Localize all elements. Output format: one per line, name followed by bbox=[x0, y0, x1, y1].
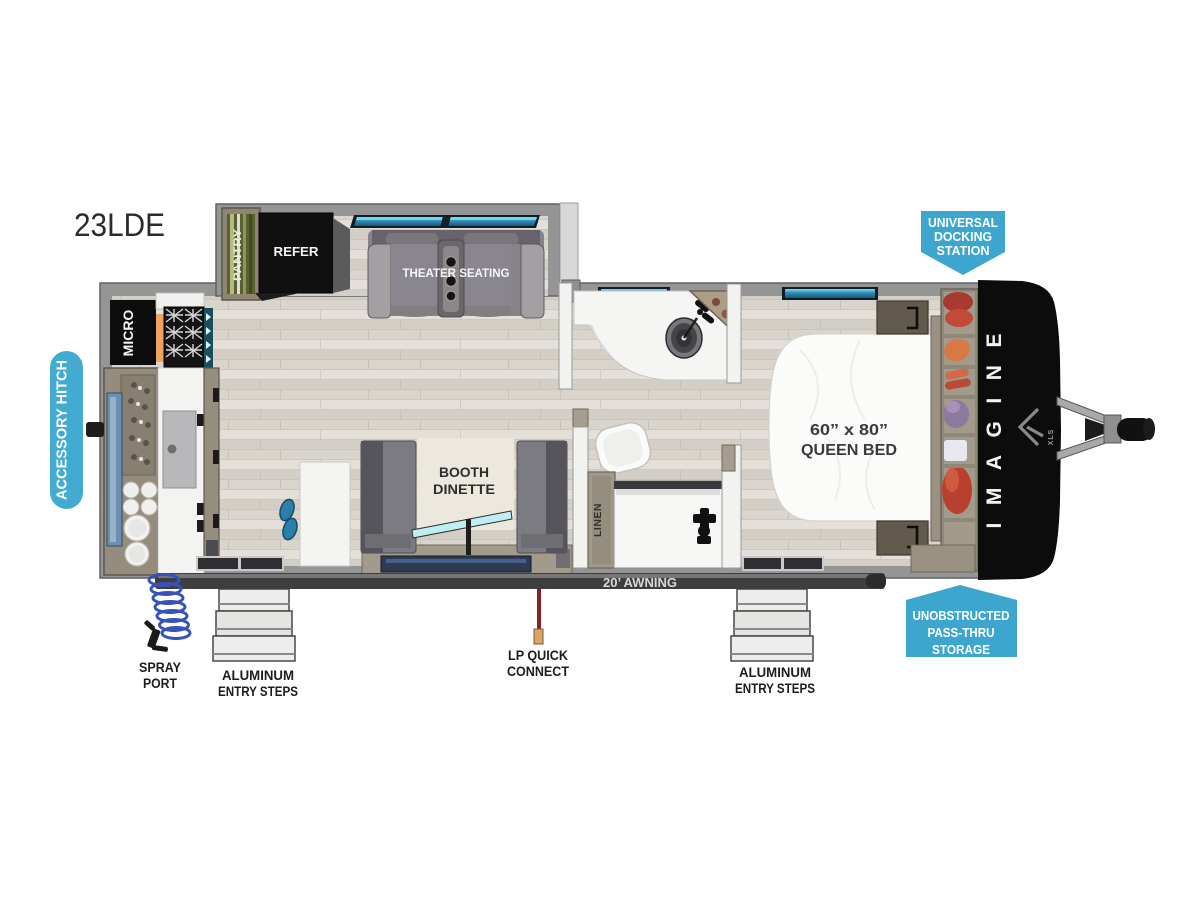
svg-text:PASS-THRU: PASS-THRU bbox=[928, 625, 995, 640]
svg-text:PANTRY: PANTRY bbox=[232, 228, 244, 281]
svg-text:ALUMINUM: ALUMINUM bbox=[222, 668, 294, 683]
svg-text:BOOTH: BOOTH bbox=[439, 464, 489, 480]
svg-text:20’ AWNING: 20’ AWNING bbox=[603, 576, 677, 590]
svg-text:REFER: REFER bbox=[274, 244, 320, 259]
svg-text:ENTRY STEPS: ENTRY STEPS bbox=[735, 681, 815, 696]
svg-text:60” x 80”: 60” x 80” bbox=[810, 422, 888, 439]
svg-text:DOCKING: DOCKING bbox=[934, 230, 992, 244]
svg-text:THEATER SEATING: THEATER SEATING bbox=[403, 266, 510, 280]
svg-text:XLS: XLS bbox=[1048, 429, 1055, 446]
svg-text:UNOBSTRUCTED: UNOBSTRUCTED bbox=[913, 608, 1010, 623]
svg-text:LINEN: LINEN bbox=[592, 503, 604, 537]
svg-text:UNIVERSAL: UNIVERSAL bbox=[928, 216, 998, 230]
svg-text:LP QUICK: LP QUICK bbox=[508, 648, 568, 663]
svg-text:23LDE: 23LDE bbox=[74, 207, 165, 243]
svg-text:DINETTE: DINETTE bbox=[433, 481, 495, 497]
svg-text:PORT: PORT bbox=[143, 676, 178, 691]
svg-text:ACCESSORY HITCH: ACCESSORY HITCH bbox=[55, 360, 71, 500]
svg-text:STATION: STATION bbox=[937, 244, 990, 258]
svg-text:QUEEN BED: QUEEN BED bbox=[801, 442, 897, 459]
svg-text:ENTRY STEPS: ENTRY STEPS bbox=[218, 684, 298, 699]
svg-text:ALUMINUM: ALUMINUM bbox=[739, 665, 811, 680]
svg-text:SPRAY: SPRAY bbox=[139, 660, 181, 675]
svg-text:STORAGE: STORAGE bbox=[932, 642, 990, 657]
svg-text:MICRO: MICRO bbox=[120, 310, 136, 357]
svg-text:CONNECT: CONNECT bbox=[507, 664, 570, 679]
